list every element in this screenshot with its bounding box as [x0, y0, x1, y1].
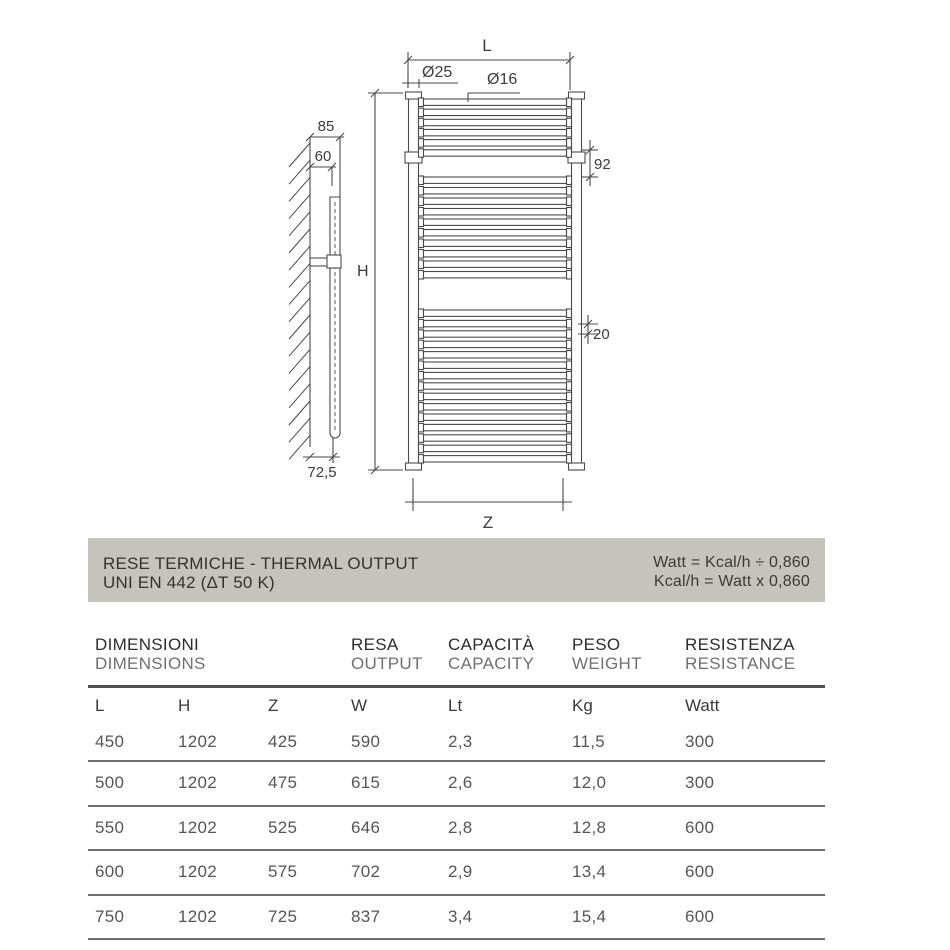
unit-Kg: Kg	[572, 696, 685, 716]
cell: 725	[268, 907, 351, 927]
cell: 837	[351, 907, 448, 927]
cell: 550	[95, 818, 178, 838]
cell: 475	[268, 773, 351, 793]
cell: 2,3	[448, 732, 572, 752]
cell: 600	[685, 862, 825, 882]
cell: 525	[268, 818, 351, 838]
cell: 2,8	[448, 818, 572, 838]
table-row: 500 1202 475 615 2,6 12,0 300	[88, 762, 825, 805]
dim-label-H: H	[357, 263, 369, 280]
table-row: 450 1202 425 590 2,3 11,5 300	[88, 724, 825, 760]
cell: 11,5	[572, 732, 685, 752]
banner-title-line1: RESE TERMICHE - THERMAL OUTPUT	[103, 554, 419, 573]
cell: 702	[351, 862, 448, 882]
dim-label-20: 20	[593, 326, 610, 343]
radiator-front-view	[405, 92, 585, 470]
cell: 1202	[178, 862, 268, 882]
cell: 300	[685, 773, 825, 793]
table-row: 600 1202 575 702 2,9 13,4 600	[88, 851, 825, 894]
cell: 600	[685, 907, 825, 927]
cell: 13,4	[572, 862, 685, 882]
wall-hatch	[289, 143, 310, 459]
cell: 1202	[178, 907, 268, 927]
cell: 3,4	[448, 907, 572, 927]
dim-label-d16: Ø16	[487, 71, 517, 88]
table-row: 550 1202 525 646 2,8 12,8 600	[88, 807, 825, 850]
dim-label-92: 92	[594, 156, 611, 173]
dim-label-Z: Z	[483, 513, 493, 532]
dim-label-d25: Ø25	[422, 64, 452, 81]
row-divider	[88, 938, 825, 940]
cell: 646	[351, 818, 448, 838]
cell: 12,8	[572, 818, 685, 838]
cell: 500	[95, 773, 178, 793]
group-header-resistance: RESISTENZA RESISTANCE	[685, 630, 825, 685]
cell: 1202	[178, 818, 268, 838]
cell: 1202	[178, 773, 268, 793]
cell: 300	[685, 732, 825, 752]
unit-H: H	[178, 696, 268, 716]
unit-Z: Z	[268, 696, 351, 716]
banner-formula-line1: Watt = Kcal/h ÷ 0,860	[653, 554, 810, 573]
cell: 590	[351, 732, 448, 752]
dim-label-72-5: 72,5	[307, 464, 336, 481]
cell: 450	[95, 732, 178, 752]
cell: 425	[268, 732, 351, 752]
dim-label-60: 60	[315, 148, 332, 165]
dim-label-L: L	[482, 36, 491, 55]
spec-table: DIMENSIONI DIMENSIONS RESA OUTPUT CAPACI…	[88, 630, 825, 940]
unit-L: L	[95, 696, 178, 716]
side-view	[303, 133, 344, 463]
cell: 615	[351, 773, 448, 793]
technical-drawing: L Ø25 Ø16 H 92 20 Z 85 60 72,5	[255, 20, 685, 535]
banner-formula-line2: Kcal/h = Watt x 0,860	[653, 573, 810, 592]
datasheet-page: L Ø25 Ø16 H 92 20 Z 85 60 72,5 RESE TERM…	[0, 0, 950, 950]
group-header-weight: PESO WEIGHT	[572, 630, 685, 685]
group-header-dimensions: DIMENSIONI DIMENSIONS	[95, 630, 351, 685]
cell: 12,0	[572, 773, 685, 793]
unit-Lt: Lt	[448, 696, 572, 716]
dim-label-85: 85	[318, 118, 335, 135]
cell: 2,6	[448, 773, 572, 793]
cell: 2,9	[448, 862, 572, 882]
unit-W: W	[351, 696, 448, 716]
thermal-output-banner: RESE TERMICHE - THERMAL OUTPUT UNI EN 44…	[88, 538, 825, 602]
cell: 600	[95, 862, 178, 882]
table-group-header: DIMENSIONI DIMENSIONS RESA OUTPUT CAPACI…	[88, 630, 825, 685]
cell: 600	[685, 818, 825, 838]
table-unit-row: L H Z W Lt Kg Watt	[88, 688, 825, 724]
cell: 15,4	[572, 907, 685, 927]
unit-Watt: Watt	[685, 696, 825, 716]
group-header-capacity: CAPACITÀ CAPACITY	[448, 630, 572, 685]
cell: 750	[95, 907, 178, 927]
banner-title-line2: UNI EN 442 (ΔT 50 K)	[103, 573, 419, 592]
table-row: 750 1202 725 837 3,4 15,4 600	[88, 896, 825, 939]
cell: 575	[268, 862, 351, 882]
cell: 1202	[178, 732, 268, 752]
group-header-output: RESA OUTPUT	[351, 630, 448, 685]
